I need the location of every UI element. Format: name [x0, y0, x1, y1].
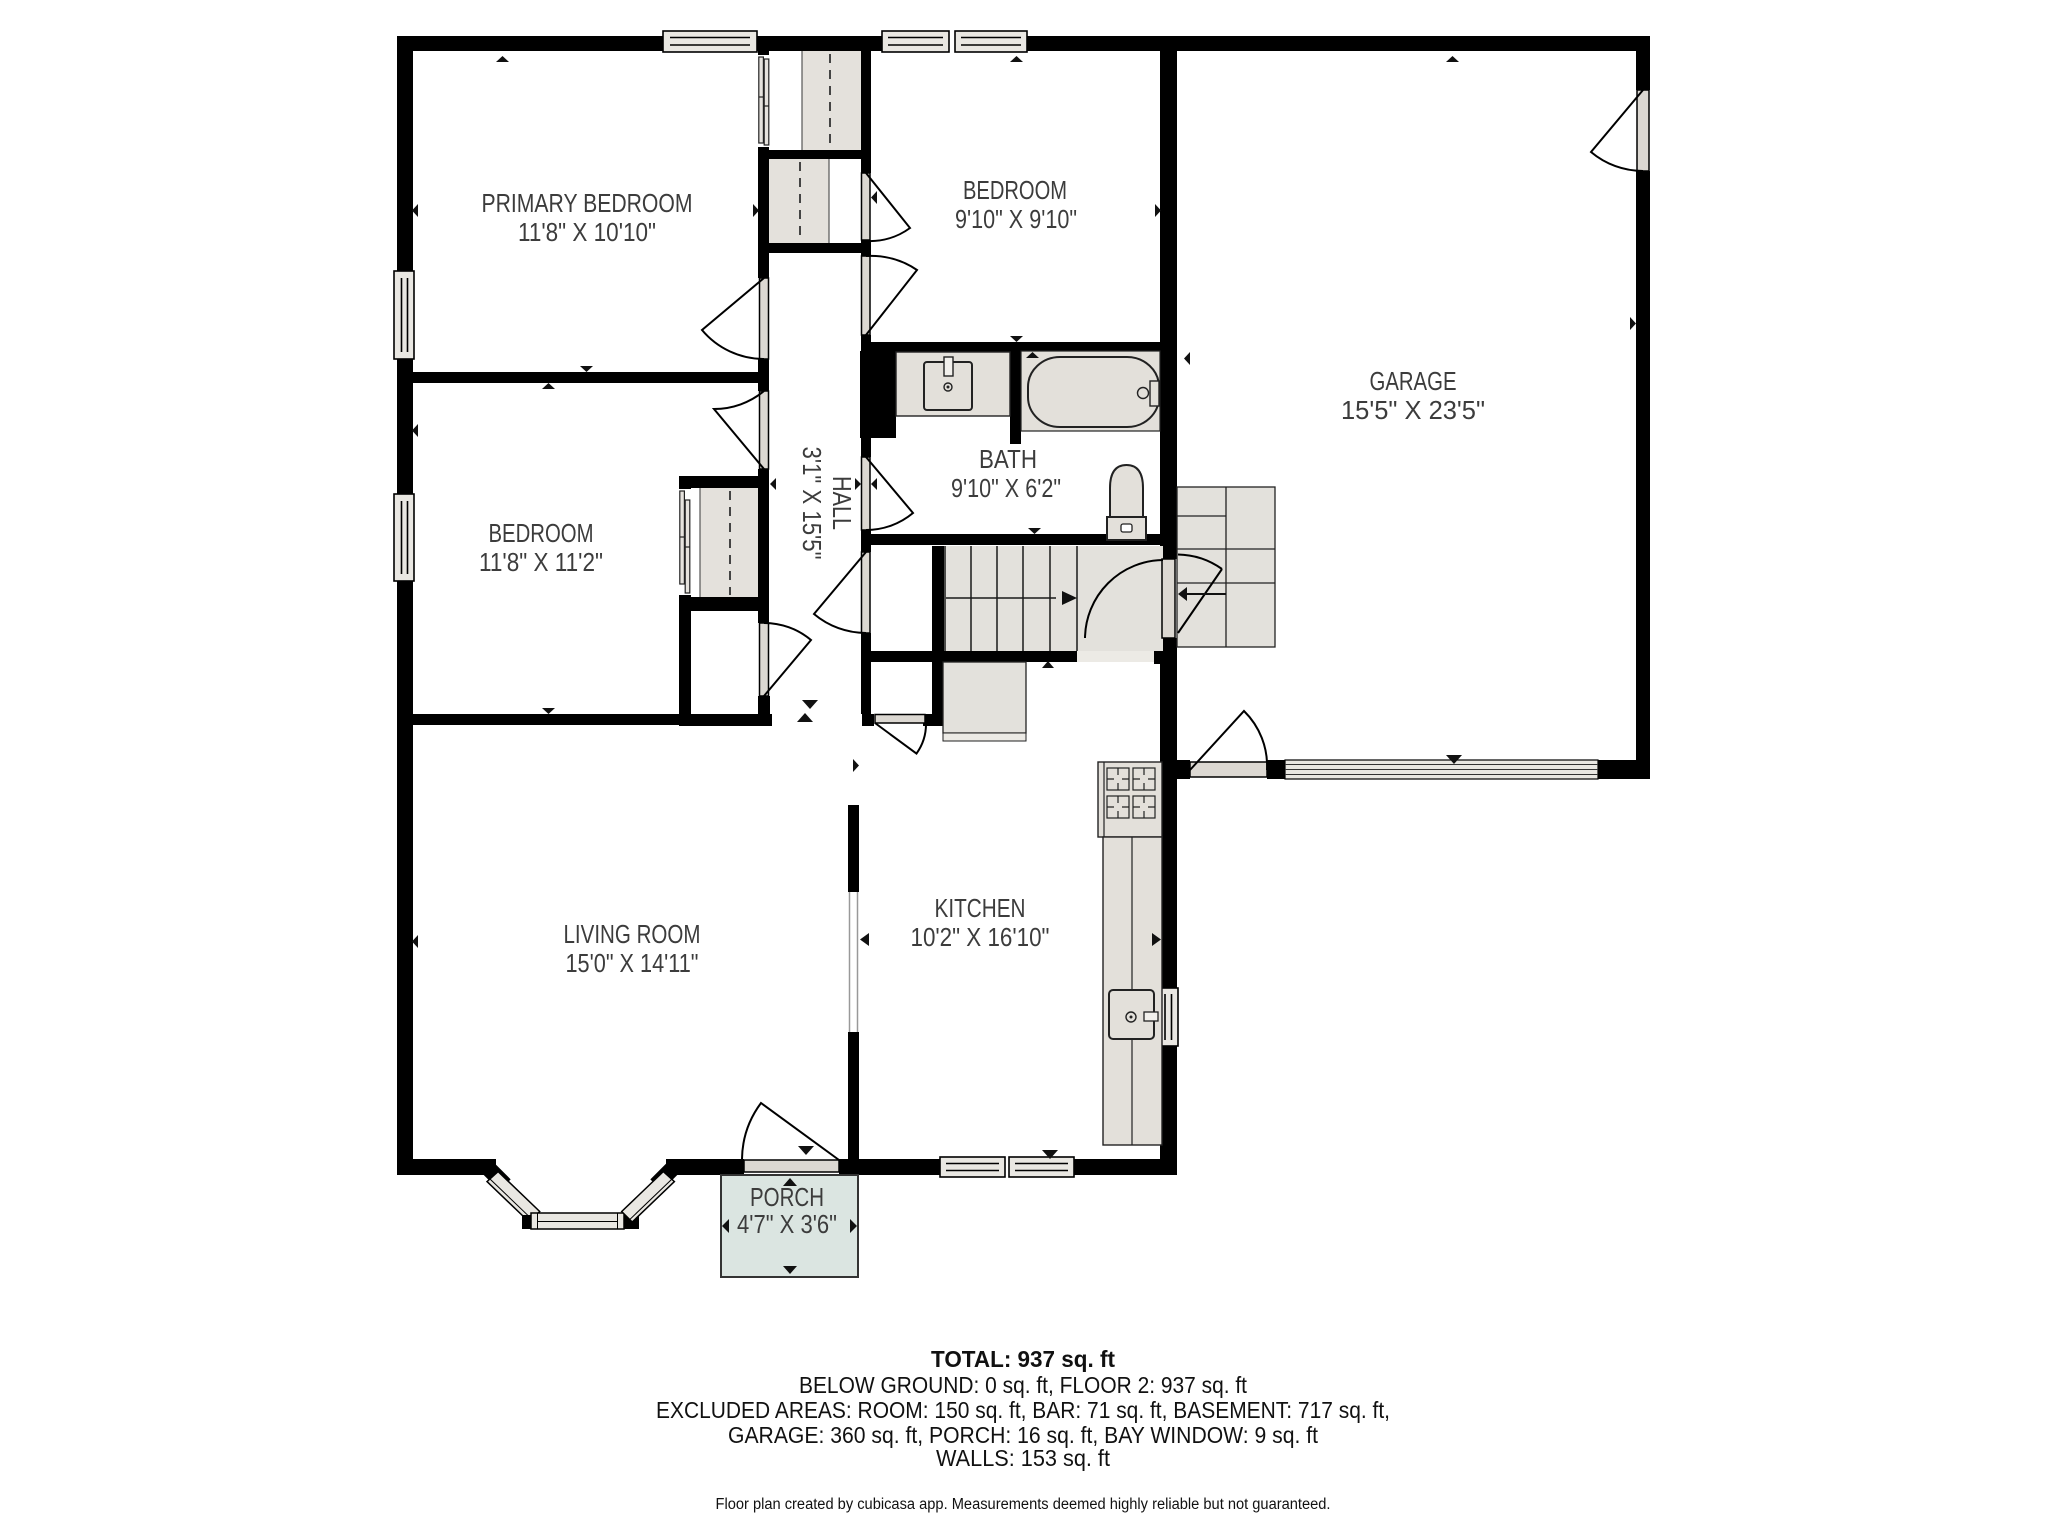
svg-text:BEDROOM: BEDROOM — [489, 518, 594, 548]
svg-text:BATH: BATH — [979, 444, 1037, 474]
svg-text:WALLS: 153 sq. ft: WALLS: 153 sq. ft — [936, 1445, 1111, 1471]
svg-text:15'5" X 23'5": 15'5" X 23'5" — [1341, 395, 1485, 425]
svg-text:10'2" X 16'10": 10'2" X 16'10" — [911, 922, 1050, 952]
svg-text:EXCLUDED AREAS: ROOM: 150 sq.: EXCLUDED AREAS: ROOM: 150 sq. ft, BAR: 7… — [656, 1397, 1390, 1423]
svg-text:9'10" X 9'10": 9'10" X 9'10" — [955, 204, 1077, 234]
svg-text:PORCH: PORCH — [750, 1182, 824, 1212]
svg-text:GARAGE: GARAGE — [1370, 366, 1457, 396]
svg-text:3'1" X 15'5": 3'1" X 15'5" — [797, 447, 827, 560]
svg-text:HALL: HALL — [827, 476, 857, 530]
svg-text:LIVING ROOM: LIVING ROOM — [564, 919, 701, 949]
svg-text:4'7" X 3'6": 4'7" X 3'6" — [737, 1209, 837, 1239]
svg-text:PRIMARY BEDROOM: PRIMARY BEDROOM — [482, 188, 693, 218]
svg-text:TOTAL: 937 sq. ft: TOTAL: 937 sq. ft — [931, 1346, 1115, 1372]
svg-text:9'10" X 6'2": 9'10" X 6'2" — [951, 473, 1061, 503]
svg-text:KITCHEN: KITCHEN — [935, 893, 1026, 923]
svg-text:11'8" X 10'10": 11'8" X 10'10" — [518, 217, 656, 247]
svg-text:11'8" X 11'2": 11'8" X 11'2" — [479, 547, 603, 577]
svg-text:BEDROOM: BEDROOM — [963, 175, 1067, 205]
svg-text:15'0" X 14'11": 15'0" X 14'11" — [566, 948, 699, 978]
svg-text:Floor plan created by cubicasa: Floor plan created by cubicasa app. Meas… — [716, 1496, 1331, 1513]
svg-text:BELOW GROUND: 0 sq. ft, FLOOR: BELOW GROUND: 0 sq. ft, FLOOR 2: 937 sq.… — [799, 1372, 1248, 1398]
